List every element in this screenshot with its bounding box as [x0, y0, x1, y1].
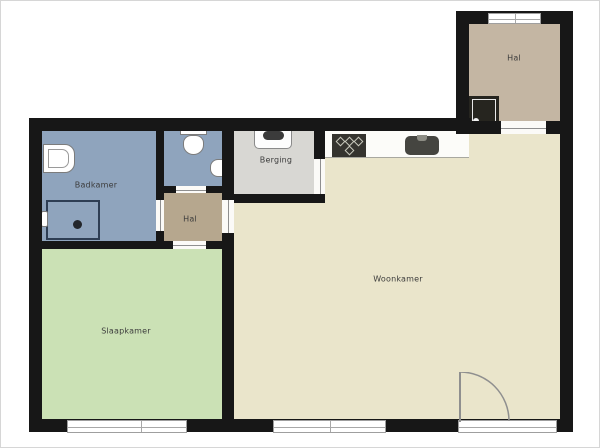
label-hal: Hal — [183, 215, 197, 224]
washbasin-icon — [43, 144, 75, 173]
burner-icon — [344, 145, 354, 155]
wall-mid-vertical — [222, 131, 234, 419]
wall-entrance-left — [456, 11, 469, 134]
wall-berging-right — [314, 131, 325, 161]
wall-berging-bottom — [234, 194, 325, 203]
shower-tap-icon — [41, 211, 48, 227]
wall-left — [29, 118, 42, 432]
wall-top — [29, 118, 471, 131]
label-berging: Berging — [260, 156, 292, 165]
door-badkamer — [156, 200, 164, 231]
label-slaapkamer: Slaapkamer — [101, 327, 151, 336]
kitchen-sink-icon — [405, 136, 439, 155]
door-hal-woonkamer — [222, 200, 234, 233]
entrance-window — [488, 13, 541, 24]
wall-right — [560, 11, 573, 432]
label-woonkamer: Woonkamer — [373, 275, 423, 284]
stove-icon — [332, 134, 366, 157]
burner-icon — [353, 136, 363, 146]
label-badkamer: Badkamer — [75, 181, 117, 190]
toilet-bowl-icon — [183, 135, 204, 155]
bedroom-window — [67, 420, 187, 433]
floor-plan: Badkamer Hal Berging Woonkamer Slaapkame… — [0, 0, 600, 448]
shower-drain-icon — [73, 220, 82, 229]
door-wc — [176, 186, 206, 193]
terrace-door-swing-arc — [460, 372, 510, 422]
door-entrance-hal — [501, 121, 546, 134]
label-entrance-hal: Hal — [507, 54, 521, 63]
livingroom-window — [273, 420, 386, 433]
door-berging — [314, 159, 325, 194]
faucet-icon — [417, 135, 427, 141]
door-slaapkamer — [173, 241, 206, 249]
shower-icon — [46, 200, 100, 240]
